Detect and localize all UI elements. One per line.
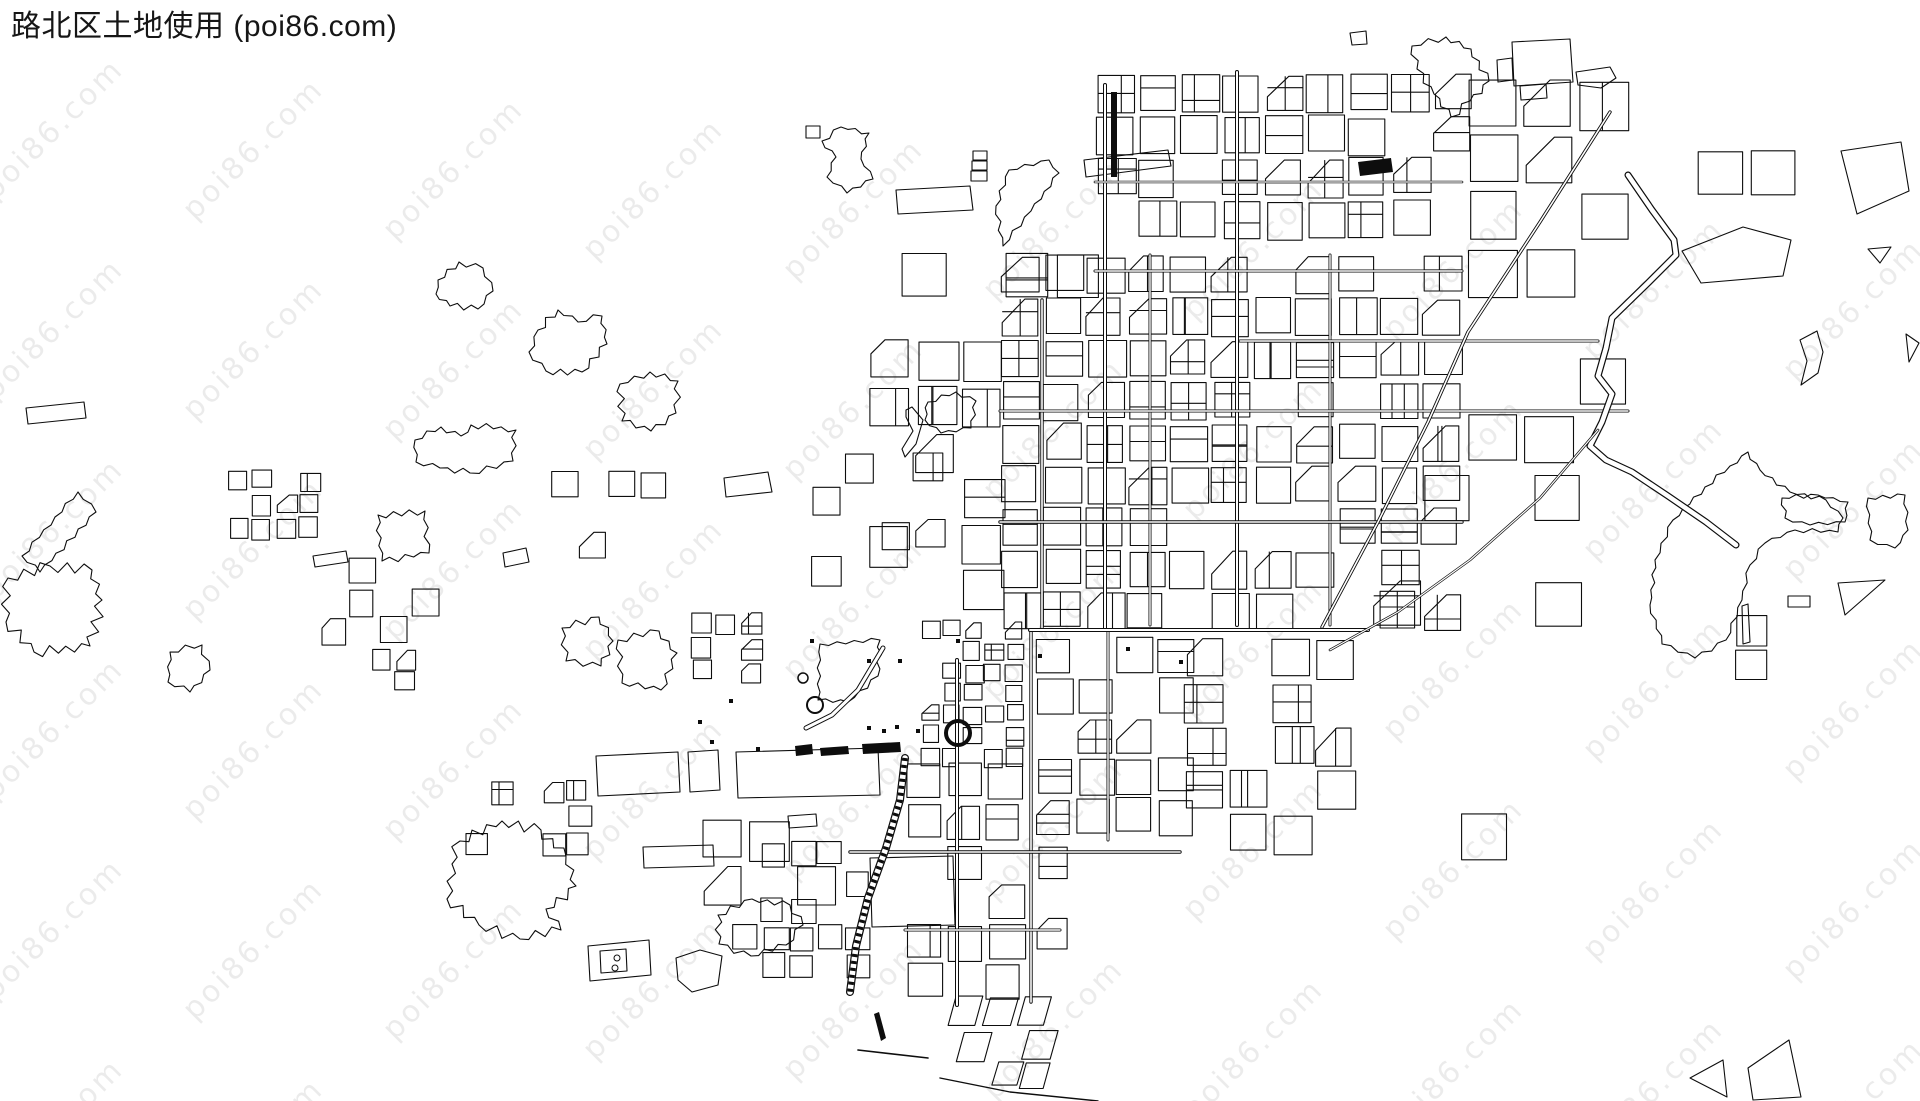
svg-text:poi86.com: poi86.com [176,872,331,1027]
svg-text:poi86.com: poi86.com [0,652,131,807]
svg-text:poi86.com: poi86.com [576,912,731,1067]
svg-text:poi86.com: poi86.com [0,852,131,1007]
svg-text:poi86.com: poi86.com [1576,212,1731,367]
land-use-map: poi86.compoi86.compoi86.compoi86.compoi8… [0,0,1920,1101]
svg-text:poi86.com: poi86.com [1776,232,1920,387]
svg-text:poi86.com: poi86.com [1776,832,1920,987]
watermark-layer: poi86.compoi86.compoi86.compoi86.compoi8… [0,52,1920,1101]
map-title: 路北区土地使用 (poi86.com) [11,8,397,46]
svg-text:poi86.com: poi86.com [0,1052,131,1101]
svg-text:poi86.com: poi86.com [1376,792,1531,947]
svg-text:poi86.com: poi86.com [576,712,731,867]
svg-text:poi86.com: poi86.com [176,272,331,427]
svg-text:poi86.com: poi86.com [1576,812,1731,967]
svg-text:poi86.com: poi86.com [1176,772,1331,927]
parcel-shapes-layer [2,31,1920,1100]
svg-text:poi86.com: poi86.com [376,1092,531,1101]
svg-text:poi86.com: poi86.com [1576,612,1731,767]
svg-text:poi86.com: poi86.com [376,892,531,1047]
svg-text:poi86.com: poi86.com [176,1072,331,1101]
svg-text:poi86.com: poi86.com [376,692,531,847]
svg-text:poi86.com: poi86.com [576,112,731,267]
svg-text:poi86.com: poi86.com [376,92,531,247]
svg-text:poi86.com: poi86.com [1776,1032,1920,1101]
svg-text:poi86.com: poi86.com [376,292,531,447]
svg-text:poi86.com: poi86.com [576,512,731,667]
svg-text:poi86.com: poi86.com [176,72,331,227]
svg-text:poi86.com: poi86.com [1376,992,1531,1101]
page-root: { "page": { "title": "路北区土地使用 (poi86.com… [0,0,1920,1101]
svg-text:poi86.com: poi86.com [1376,592,1531,747]
svg-text:poi86.com: poi86.com [176,672,331,827]
svg-text:poi86.com: poi86.com [0,252,131,407]
svg-text:poi86.com: poi86.com [776,132,931,287]
svg-text:poi86.com: poi86.com [576,312,731,467]
svg-text:poi86.com: poi86.com [976,952,1131,1101]
svg-text:poi86.com: poi86.com [0,452,131,607]
svg-text:poi86.com: poi86.com [1176,572,1331,727]
svg-text:poi86.com: poi86.com [1176,972,1331,1101]
svg-text:poi86.com: poi86.com [1776,432,1920,587]
svg-text:poi86.com: poi86.com [1776,632,1920,787]
svg-text:poi86.com: poi86.com [0,52,131,207]
